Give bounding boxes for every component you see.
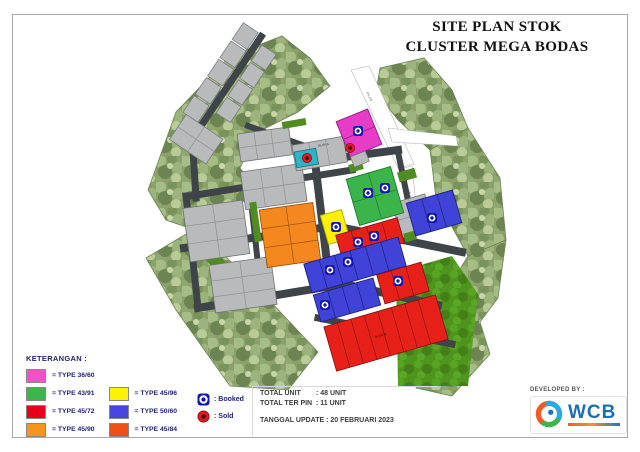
summary: TOTAL UNIT : 48 UNIT TOTAL TER PIN : 11 … (260, 389, 394, 424)
developer-logo-box: WCB (530, 396, 627, 434)
title-line-2: CLUSTER MEGA BODAS (382, 38, 612, 58)
title-line-1: SITE PLAN STOK (382, 18, 612, 38)
swatch-red (26, 405, 46, 419)
status-legend: : Booked : Sold (197, 393, 244, 423)
legend-heading: KETERANGAN : (26, 354, 177, 363)
sold-marker (345, 143, 354, 152)
swatch-green (26, 387, 46, 401)
legend-label: = TYPE 43/91 (52, 390, 95, 397)
legend-item-type-43-91: = TYPE 43/91 (26, 387, 95, 400)
sold-icon (197, 410, 210, 423)
update-date-line: TANGGAL UPDATE : 20 FEBRUARI 2023 (260, 417, 394, 424)
total-terpin-label: TOTAL TER PIN (260, 399, 316, 409)
legend-item-type-50-60: = TYPE 50/60 (109, 405, 178, 418)
legend-booked: : Booked (197, 393, 244, 406)
units-orange-type-45-90 (259, 203, 321, 268)
legend: KETERANGAN : = TYPE 36/60 = TYPE 43/91 =… (26, 354, 177, 436)
site-plan-page: JALAN JALAN (0, 0, 640, 452)
legend-item-type-45-90: = TYPE 45/90 (26, 423, 95, 436)
wcb-logo-text: WCB (568, 403, 616, 422)
legend-label: = TYPE 36/60 (52, 372, 95, 379)
swatch-orange (26, 423, 46, 437)
wcb-tagline-bar (568, 423, 620, 426)
legend-item-type-45-72: = TYPE 45/72 (26, 405, 95, 418)
legend-label: = TYPE 45/84 (135, 426, 178, 433)
booked-marker (363, 188, 373, 198)
total-unit-row: TOTAL UNIT : 48 UNIT (260, 389, 394, 399)
swatch-blue (109, 405, 129, 419)
total-terpin-value: : 11 UNIT (316, 399, 346, 409)
page-title: SITE PLAN STOK CLUSTER MEGA BODAS (382, 18, 612, 57)
booked-marker (393, 276, 403, 286)
booked-icon (197, 393, 210, 406)
booked-marker (343, 257, 353, 267)
swatch-orange-red (109, 423, 129, 437)
legend-label: = TYPE 45/72 (52, 408, 95, 415)
sold-label: : Sold (214, 413, 233, 420)
booked-marker (353, 126, 363, 136)
booked-marker (320, 300, 330, 310)
developed-by-heading: DEVELOPED BY : (530, 387, 627, 393)
legend-item-type-45-84: = TYPE 45/84 (109, 423, 178, 436)
developer-block: DEVELOPED BY : WCB (530, 387, 627, 434)
legend-item-type-36-60: = TYPE 36/60 (26, 369, 95, 382)
total-unit-label: TOTAL UNIT (260, 389, 316, 399)
summary-divider-horizontal (252, 386, 438, 387)
legend-label: = TYPE 45/96 (135, 390, 178, 397)
units-green-type-43-91 (346, 167, 403, 226)
total-unit-value: : 48 UNIT (316, 389, 346, 399)
sold-marker (302, 153, 311, 162)
booked-marker (353, 237, 363, 247)
legend-sold: : Sold (197, 410, 244, 423)
total-terpin-row: TOTAL TER PIN : 11 UNIT (260, 399, 394, 409)
booked-marker (369, 231, 379, 241)
booked-marker (427, 213, 437, 223)
summary-divider-vertical (252, 386, 253, 436)
swatch-pink (26, 369, 46, 383)
legend-label: = TYPE 45/90 (52, 426, 95, 433)
wcb-logo-icon (534, 399, 564, 429)
booked-marker (331, 222, 341, 232)
booked-label: : Booked (214, 396, 244, 403)
booked-marker (325, 265, 335, 275)
booked-marker (380, 183, 390, 193)
swatch-yellow (109, 387, 129, 401)
legend-item-type-45-96: = TYPE 45/96 (109, 387, 178, 400)
legend-label: = TYPE 50/60 (135, 408, 178, 415)
